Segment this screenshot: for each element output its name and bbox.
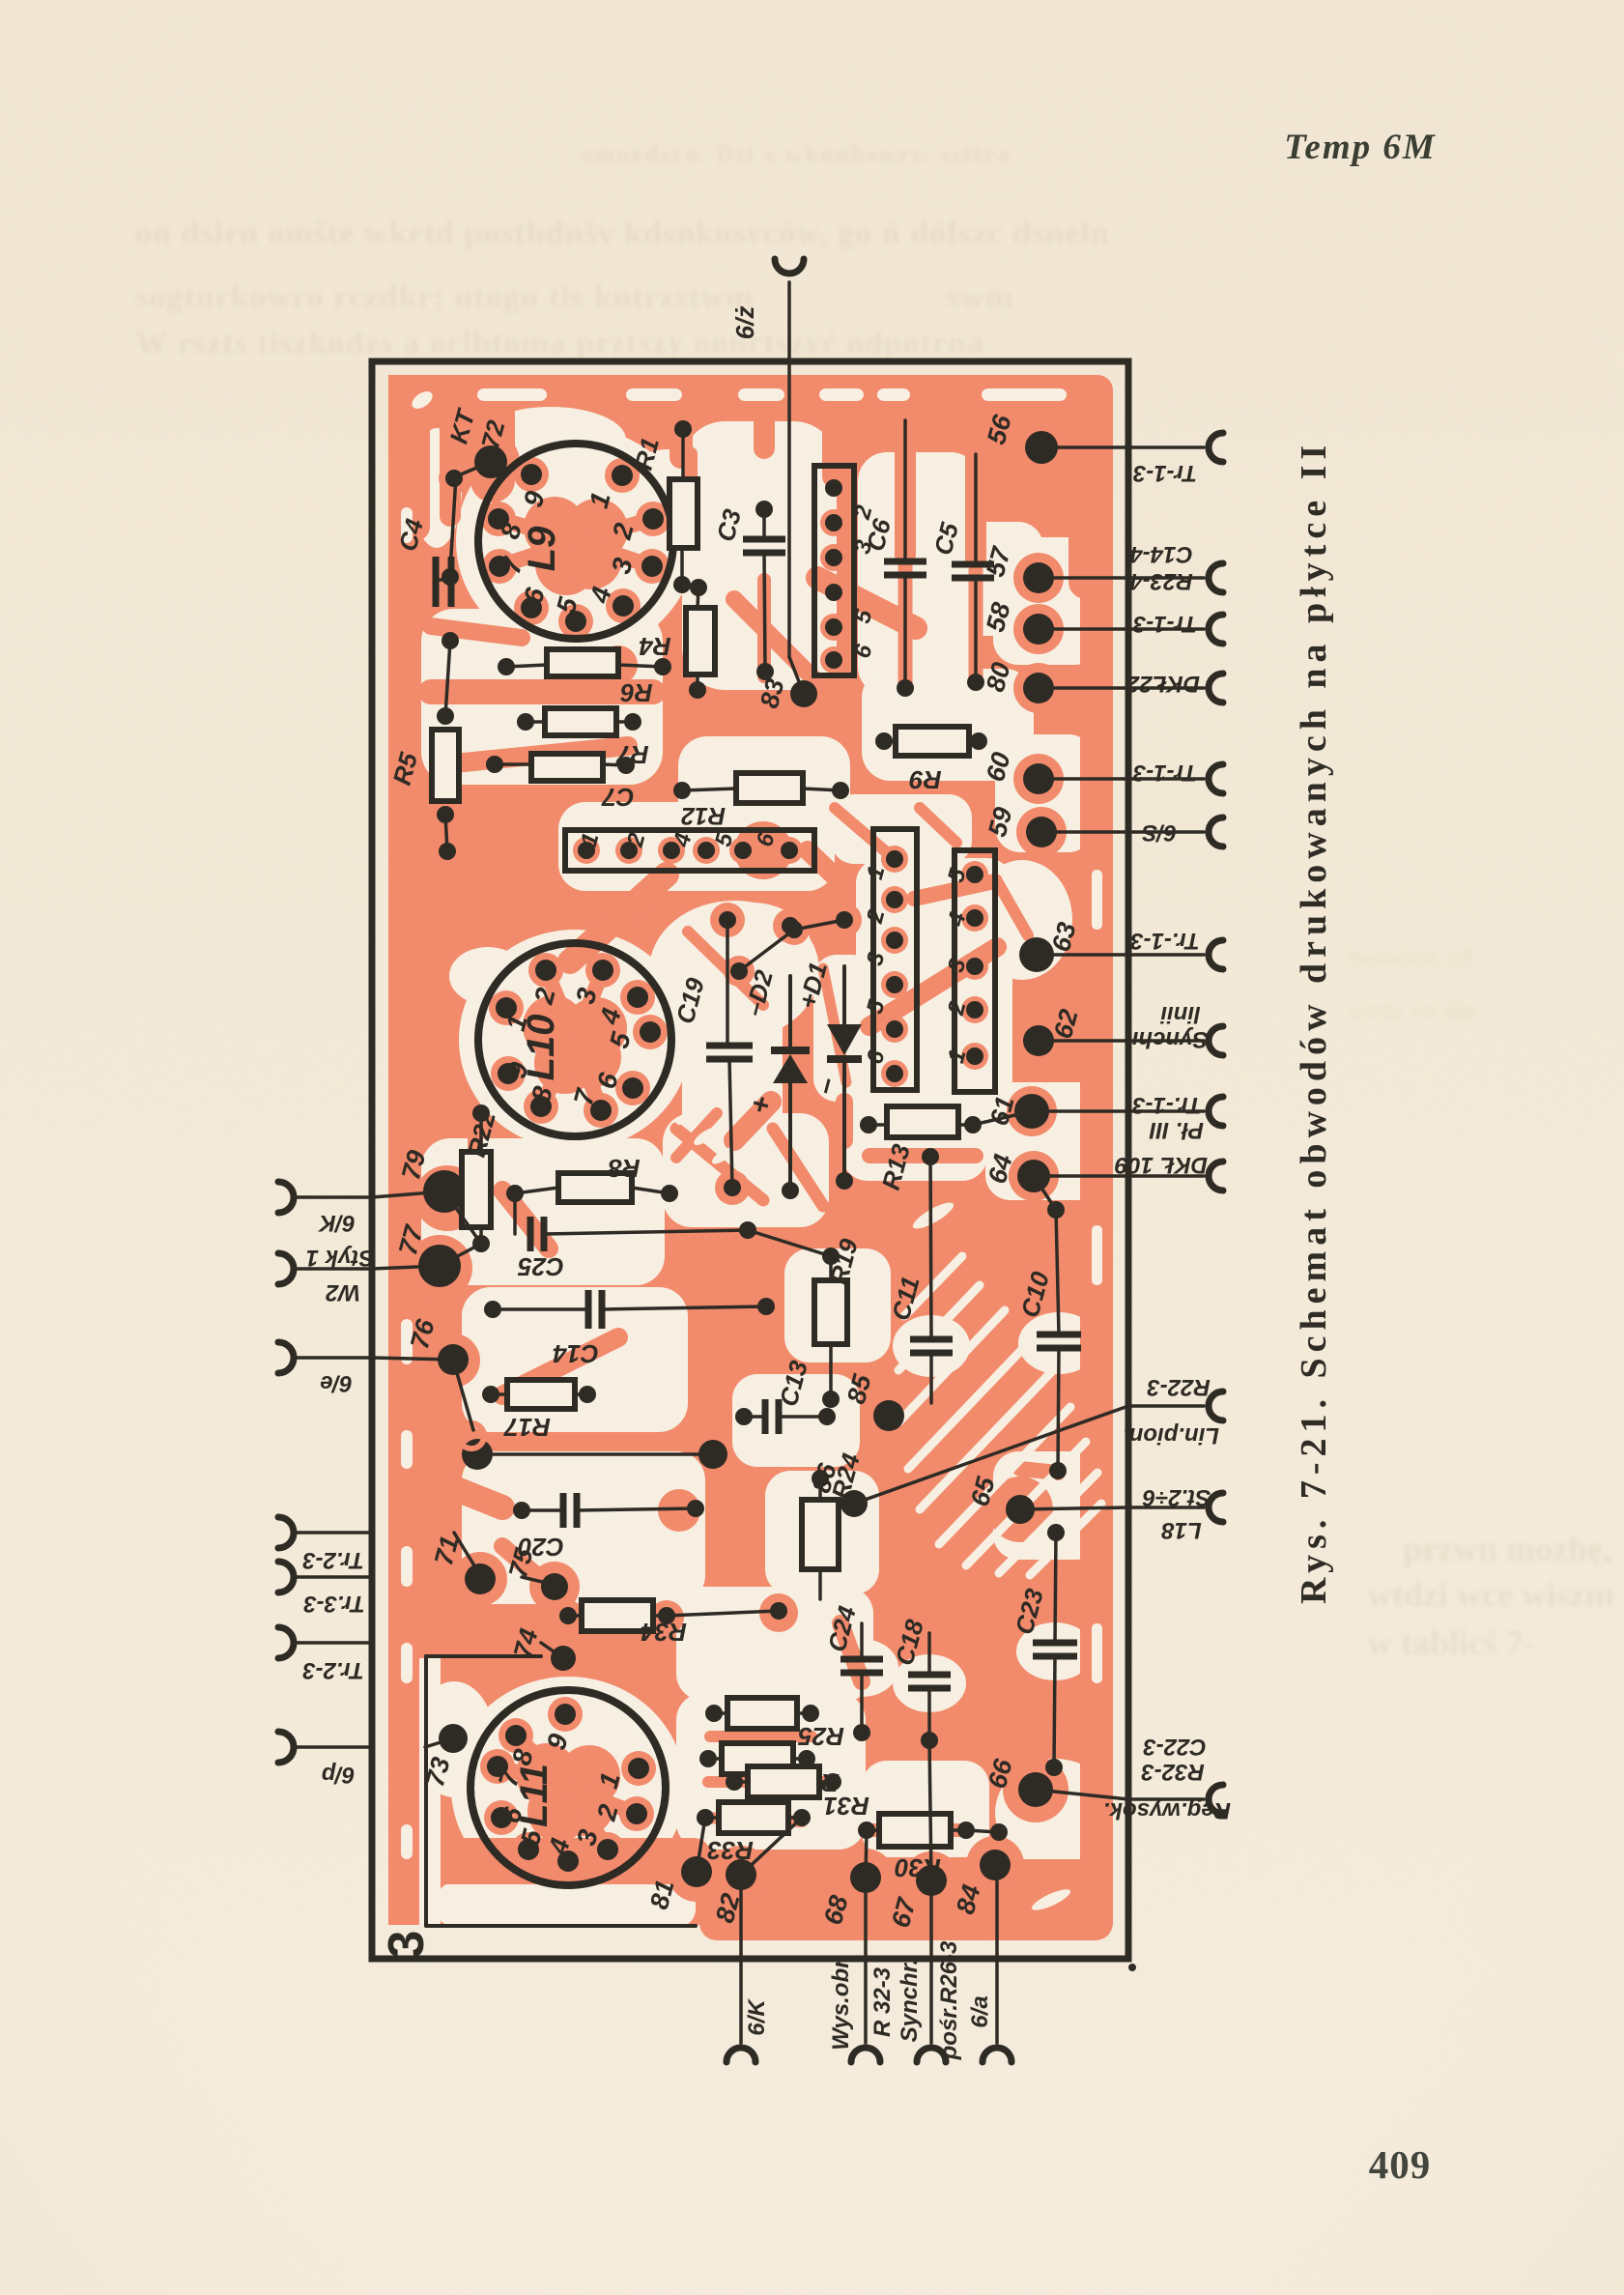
svg-text:L11: L11 (513, 1764, 556, 1827)
svg-text:Tr-1-3: Tr-1-3 (1132, 760, 1197, 786)
svg-text:St.2÷6: St.2÷6 (1142, 1484, 1211, 1510)
svg-text:R33: R33 (707, 1836, 754, 1865)
svg-text:wrtz ce dn: wrtz ce dn (1348, 994, 1477, 1026)
svg-text:L10: L10 (520, 1015, 562, 1081)
svg-text:6/p: 6/p (322, 1762, 356, 1788)
svg-text:R8: R8 (608, 1154, 641, 1183)
svg-text:R9: R9 (909, 765, 942, 794)
svg-text:Styk 1: Styk 1 (306, 1245, 375, 1271)
svg-text:R25: R25 (798, 1722, 844, 1751)
svg-text:6/a: 6/a (967, 1995, 993, 2027)
svg-text:on dslrn omšte wkrtd posthdnšv: on dslrn omšte wkrtd posthdnšv kdsnkosvc… (135, 215, 1110, 251)
svg-text:linii: linii (1159, 1001, 1201, 1027)
svg-text:Tr-1-3: Tr-1-3 (1132, 460, 1197, 486)
svg-text:Synchr.: Synchr. (1125, 1026, 1209, 1052)
svg-text:R23-4: R23-4 (1129, 568, 1192, 594)
svg-text:6/e: 6/e (320, 1370, 352, 1396)
svg-text:R 32-3: R 32-3 (869, 1966, 896, 2037)
svg-text:Tr.2-3: Tr.2-3 (302, 1657, 364, 1683)
svg-text:L18: L18 (1161, 1517, 1202, 1543)
svg-text:swm: swm (947, 279, 1013, 315)
svg-text:Tr.-1-3: Tr.-1-3 (1130, 928, 1200, 954)
svg-text:C7: C7 (601, 783, 635, 812)
svg-text:Synchr.: Synchr. (897, 1959, 923, 2043)
svg-text:C14-4: C14-4 (1129, 541, 1192, 567)
svg-text:R22-3: R22-3 (1147, 1374, 1211, 1400)
svg-text:Lin.pion.: Lin.pion. (1123, 1422, 1219, 1449)
svg-text:R34: R34 (641, 1618, 687, 1647)
svg-text:Pł. III: Pł. III (1149, 1117, 1204, 1143)
svg-text:R30: R30 (895, 1853, 941, 1882)
svg-text:Tr.-1-3: Tr.-1-3 (1132, 1092, 1202, 1118)
svg-text:Reg.wysok.: Reg.wysok. (1103, 1797, 1231, 1823)
svg-text:R31: R31 (823, 1792, 869, 1821)
svg-text:6/ż: 6/ż (730, 306, 759, 340)
svg-text:sogtnrkowro rczdkr; ntogn tis: sogtnrkowro rczdkr; ntogn tis kntrzstwm (135, 279, 754, 315)
svg-text:omoedsro. Dtt s wkonbswrs. sst: omoedsro. Dtt s wkonbswrs. ssttra (580, 140, 1011, 168)
svg-text:C20: C20 (518, 1533, 564, 1562)
svg-text:6/S: 6/S (1142, 819, 1177, 846)
svg-text:R6: R6 (620, 678, 653, 707)
svg-text:R17: R17 (503, 1413, 551, 1442)
svg-text:3: 3 (379, 1931, 435, 1959)
svg-text:Tr.3-3: Tr.3-3 (303, 1591, 365, 1617)
svg-text:wtdzi wce wiszm: wtdzi wce wiszm (1367, 1575, 1614, 1614)
svg-text:6/K: 6/K (744, 1998, 770, 2036)
svg-text:L9: L9 (521, 526, 563, 571)
svg-text:Wys.obr.: Wys.obr. (828, 1954, 854, 2051)
svg-text:bsmrtn sd: bsmrtn sd (1348, 941, 1473, 973)
svg-text:DKŁ22: DKŁ22 (1125, 671, 1200, 697)
svg-text:C22-3: C22-3 (1143, 1734, 1207, 1760)
svg-text:W rszts tiszkodzs a oclbtom: W rszts tiszkodzs a oclbtoma prztszy oon… (135, 326, 984, 361)
svg-text:R12: R12 (681, 802, 726, 829)
svg-text:C25: C25 (518, 1252, 564, 1281)
svg-text:Temp 6M: Temp 6M (1284, 128, 1437, 167)
svg-text:w tablicś 7-: w tablicś 7- (1367, 1623, 1535, 1662)
svg-text:Tr.2-3: Tr.2-3 (302, 1547, 364, 1573)
svg-text:Rys. 7-21. Schemat obwodów dru: Rys. 7-21. Schemat obwodów drukowanych n… (1294, 440, 1334, 1604)
svg-text:6/K: 6/K (318, 1210, 356, 1236)
svg-text:W2: W2 (325, 1279, 360, 1305)
svg-text:przwn mozhę,: przwn mozhę, (1403, 1530, 1611, 1568)
svg-text:R32-3: R32-3 (1141, 1759, 1205, 1785)
svg-text:R4: R4 (639, 632, 671, 661)
svg-text:C14: C14 (553, 1339, 599, 1368)
svg-text:pośr.R26-3: pośr.R26-3 (936, 1940, 962, 2060)
svg-text:409: 409 (1369, 2142, 1432, 2187)
svg-text:Tr-1-3: Tr-1-3 (1132, 611, 1197, 637)
svg-text:DKŁ 109: DKŁ 109 (1114, 1152, 1208, 1178)
